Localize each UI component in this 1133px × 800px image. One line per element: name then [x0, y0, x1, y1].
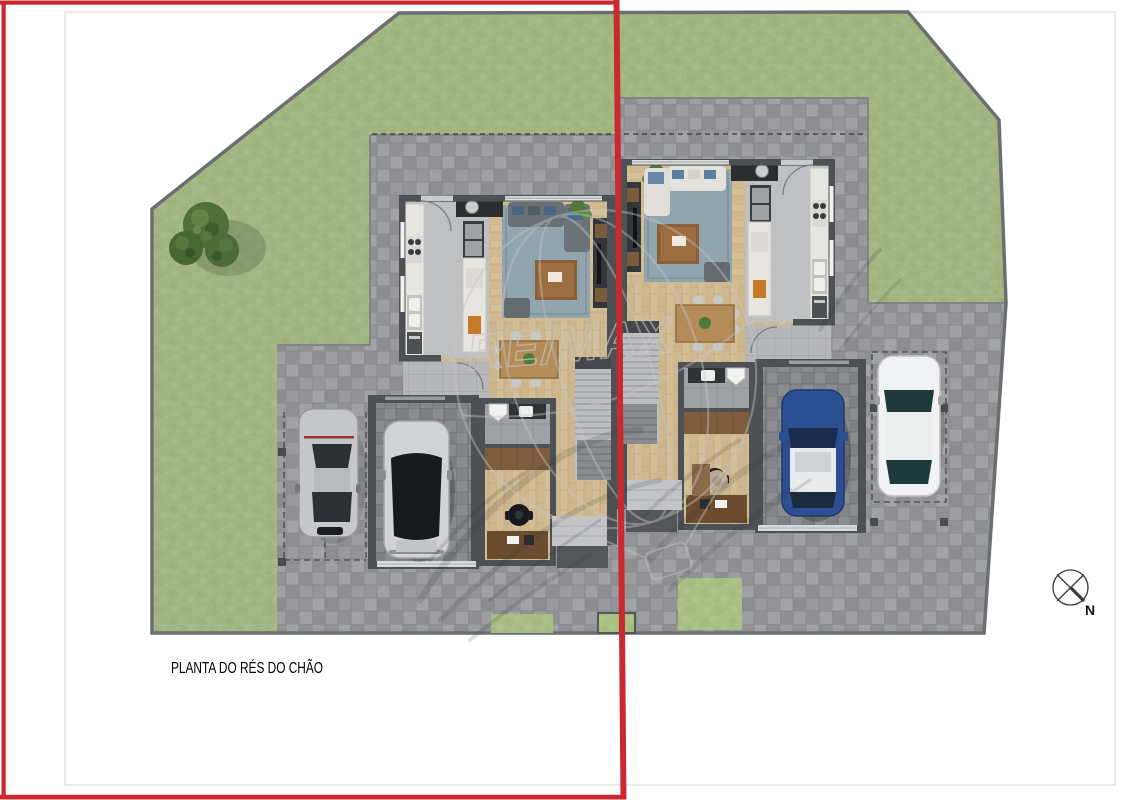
svg-text:N: N	[1085, 602, 1095, 618]
svg-text:PLANTA DO RÉS DO CHÃO: PLANTA DO RÉS DO CHÃO	[171, 657, 323, 677]
